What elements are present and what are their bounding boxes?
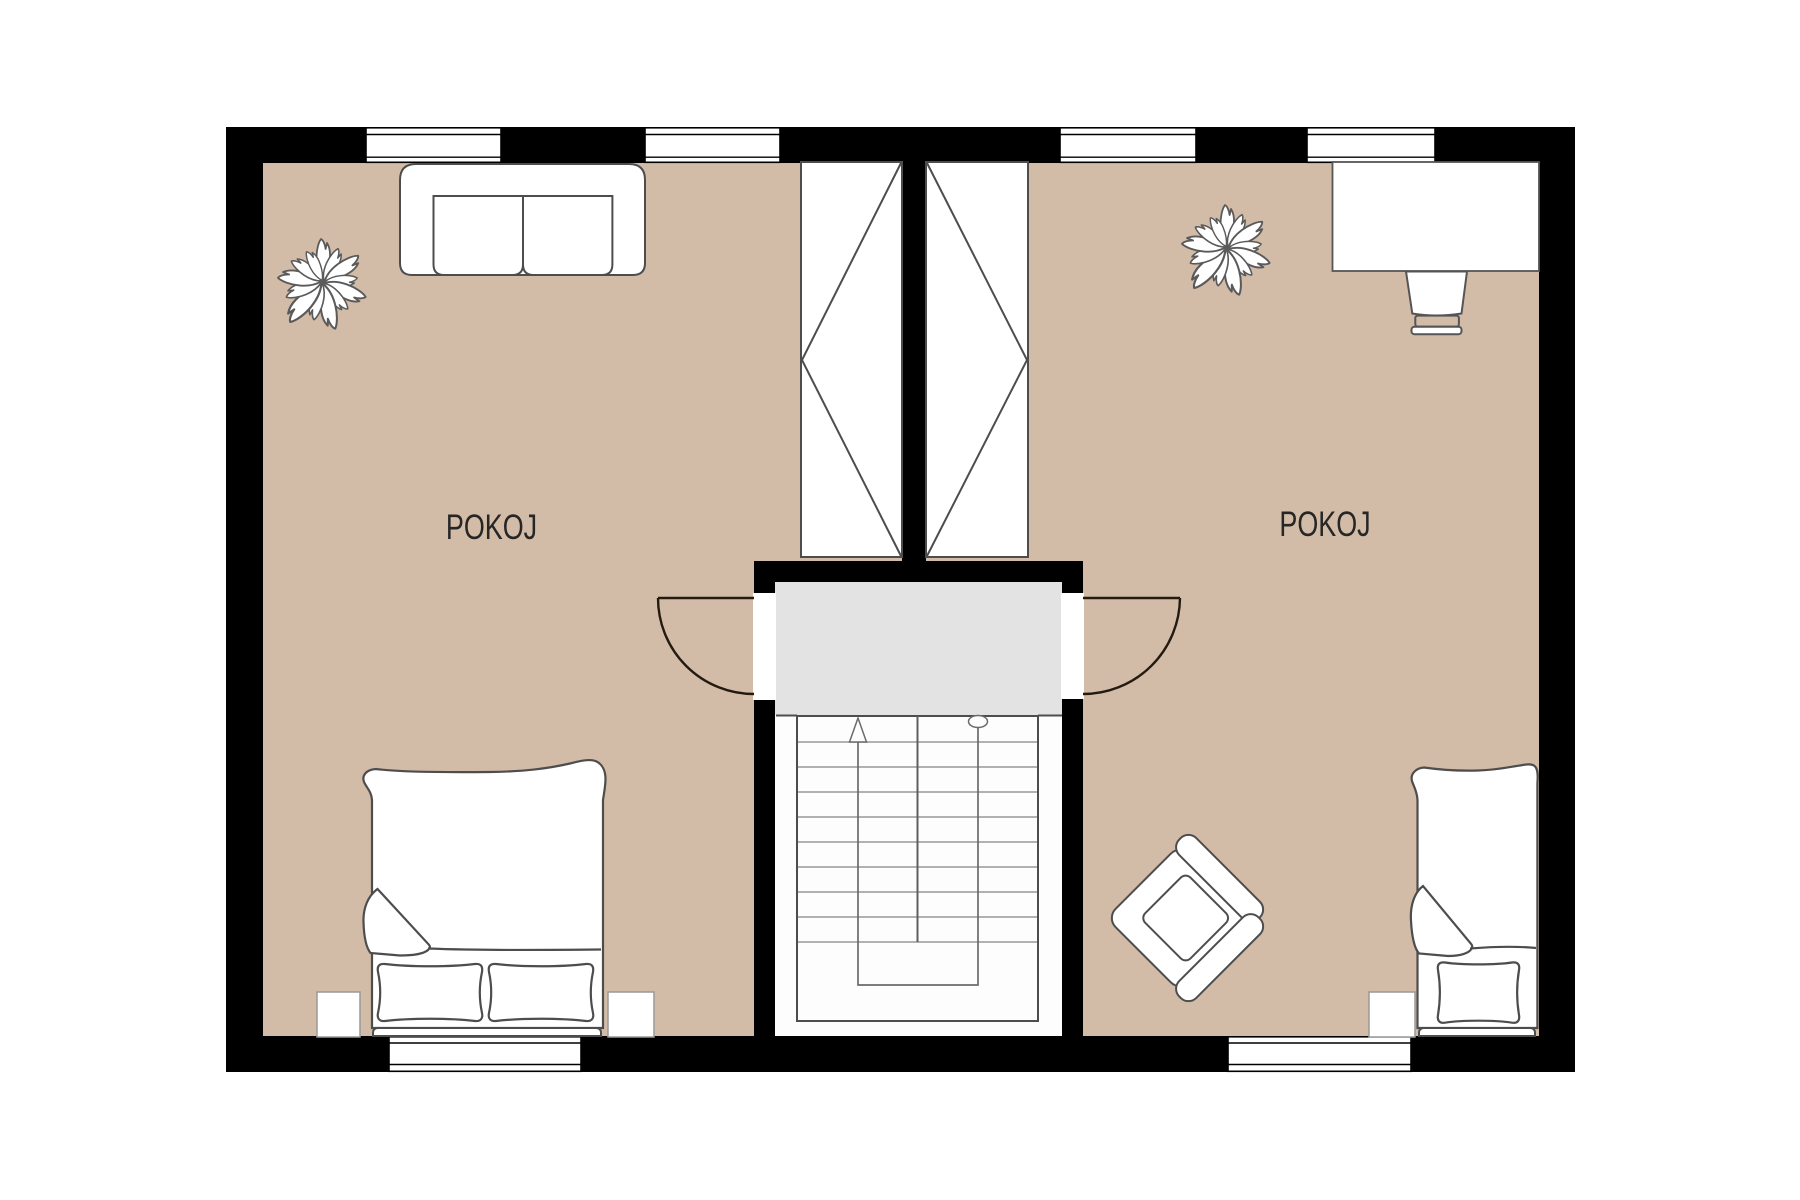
svg-text:POKOJ: POKOJ bbox=[1279, 505, 1370, 544]
svg-text:POKOJ: POKOJ bbox=[446, 508, 537, 547]
